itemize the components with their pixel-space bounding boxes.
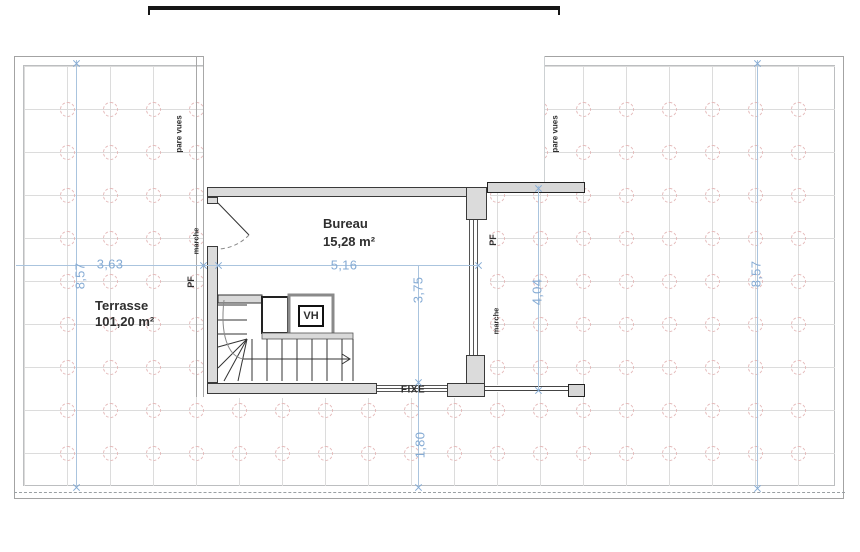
dim-tick bbox=[534, 184, 543, 193]
tile-joint-circle bbox=[318, 446, 333, 461]
tile-joint-circle bbox=[103, 403, 118, 418]
tile-joint-circle bbox=[748, 145, 763, 160]
left-wall-outer-face-line bbox=[196, 56, 197, 397]
tile-joint-circle bbox=[146, 102, 161, 117]
tile-joint-circle bbox=[232, 446, 247, 461]
tile-joint-circle bbox=[705, 317, 720, 332]
tile-joint-circle bbox=[103, 446, 118, 461]
tile-joint-circle bbox=[619, 403, 634, 418]
vh-skylight-label: VH bbox=[299, 306, 323, 326]
tile-joint-circle bbox=[576, 403, 591, 418]
tile-joint-circle bbox=[662, 188, 677, 203]
bureau-wall-corner-top-right bbox=[466, 187, 487, 220]
dim-tick bbox=[199, 261, 208, 270]
dim-tick bbox=[72, 483, 81, 492]
tile-joint-circle bbox=[576, 231, 591, 246]
tile-joint-circle bbox=[705, 360, 720, 375]
bureau-wall-bottom-right-piece bbox=[447, 383, 485, 397]
tile-joint-circle bbox=[490, 403, 505, 418]
tile-joint-circle bbox=[146, 188, 161, 203]
tile-joint-circle bbox=[705, 446, 720, 461]
tile-joint-circle bbox=[103, 145, 118, 160]
tile-joint-circle bbox=[146, 231, 161, 246]
tile-joint-circle bbox=[146, 360, 161, 375]
tile-joint-circle bbox=[490, 446, 505, 461]
tile-joint-circle bbox=[619, 102, 634, 117]
notch-right-boundary-line bbox=[544, 56, 545, 183]
tile-joint-circle bbox=[619, 446, 634, 461]
tile-joint-circle bbox=[60, 360, 75, 375]
tile-joint-circle bbox=[404, 403, 419, 418]
window-pf-right-line bbox=[469, 220, 470, 355]
tile-joint-circle bbox=[447, 403, 462, 418]
tile-joint-circle bbox=[146, 274, 161, 289]
tile-joint-circle bbox=[361, 403, 376, 418]
tile-joint-circle bbox=[447, 446, 462, 461]
tile-joint-circle bbox=[533, 317, 548, 332]
tile-joint-circle bbox=[275, 446, 290, 461]
tile-joint-circle bbox=[662, 274, 677, 289]
tile-joint-circle bbox=[576, 145, 591, 160]
dim-label-terrace-height-right: 8,57 bbox=[749, 261, 764, 288]
tile-joint-circle bbox=[662, 446, 677, 461]
tile-joint-circle bbox=[490, 274, 505, 289]
tile-joint-circle bbox=[619, 231, 634, 246]
railing-bottom-right-line bbox=[485, 386, 568, 387]
tile-joint-circle bbox=[619, 360, 634, 375]
tile-joint-circle bbox=[533, 446, 548, 461]
tile-joint-circle bbox=[576, 317, 591, 332]
tile-joint-circle bbox=[60, 231, 75, 246]
tile-joint-circle bbox=[748, 403, 763, 418]
tile-joint-circle bbox=[791, 274, 806, 289]
upper-floor-wall-line bbox=[148, 6, 560, 10]
tile-joint-circle bbox=[146, 446, 161, 461]
tile-joint-circle bbox=[189, 403, 204, 418]
tile-joint-circle bbox=[146, 145, 161, 160]
tile-joint-circle bbox=[748, 360, 763, 375]
dim-tick bbox=[414, 483, 423, 492]
tile-joint-circle bbox=[791, 317, 806, 332]
tile-joint-circle bbox=[60, 188, 75, 203]
bureau-area: 15,28 m² bbox=[323, 233, 375, 251]
tile-joint-circle bbox=[662, 360, 677, 375]
tile-joint-circle bbox=[791, 360, 806, 375]
tile-joint-circle bbox=[533, 403, 548, 418]
tile-joint-circle bbox=[533, 231, 548, 246]
tile-joint-circle bbox=[662, 317, 677, 332]
window-pf-right-line bbox=[477, 220, 478, 355]
door-swing-icon bbox=[204, 186, 264, 256]
tile-joint-circle bbox=[748, 231, 763, 246]
tile-joint-circle bbox=[705, 102, 720, 117]
window-pf-right-line bbox=[473, 220, 474, 355]
terrasse-name: Terrasse bbox=[95, 298, 154, 314]
upper-notch-area bbox=[204, 53, 544, 187]
floor-plan: VH 8,57 3,63 5,16 3,75 4,04 1,80 8,57 Te… bbox=[0, 0, 860, 552]
dim-tick bbox=[474, 261, 483, 270]
tile-joint-circle bbox=[791, 188, 806, 203]
tile-joint-circle bbox=[60, 102, 75, 117]
dim-label-bottom-offset: 1,80 bbox=[413, 432, 428, 459]
tile-joint-circle bbox=[232, 403, 247, 418]
tile-joint-circle bbox=[576, 446, 591, 461]
tile-joint-circle bbox=[791, 102, 806, 117]
tile-joint-circle bbox=[60, 145, 75, 160]
tile-joint-circle bbox=[619, 274, 634, 289]
tile-joint-circle bbox=[490, 360, 505, 375]
tile-joint-circle bbox=[361, 446, 376, 461]
tile-joint-circle bbox=[275, 403, 290, 418]
tile-joint-circle bbox=[576, 274, 591, 289]
tile-joint-circle bbox=[318, 403, 333, 418]
tile-joint-circle bbox=[103, 360, 118, 375]
tile-joint-circle bbox=[705, 188, 720, 203]
dim-tick bbox=[534, 386, 543, 395]
tile-joint-circle bbox=[791, 231, 806, 246]
tile-joint-circle bbox=[189, 446, 204, 461]
dim-tick bbox=[214, 261, 223, 270]
tile-joint-circle bbox=[662, 102, 677, 117]
pare-vues-post-bottom-right bbox=[568, 384, 585, 397]
tile-joint-circle bbox=[60, 403, 75, 418]
tile-joint-circle bbox=[60, 317, 75, 332]
tile-joint-circle bbox=[619, 317, 634, 332]
tile-joint-circle bbox=[60, 446, 75, 461]
marche-label-left: marche bbox=[192, 228, 201, 255]
tile-joint-circle bbox=[619, 145, 634, 160]
tile-joint-circle bbox=[791, 446, 806, 461]
tile-joint-circle bbox=[791, 145, 806, 160]
tile-joint-circle bbox=[576, 102, 591, 117]
dim-label-terrace-height-left: 8,57 bbox=[73, 263, 88, 290]
pare-vues-label-left: pare vues bbox=[175, 115, 184, 152]
terrace-bottom-dashed-edge bbox=[14, 492, 845, 493]
tile-joint-circle bbox=[748, 102, 763, 117]
pf-label-left: PF bbox=[186, 276, 196, 288]
dim-label-terrace-width-left: 3,63 bbox=[97, 257, 124, 272]
tile-joint-circle bbox=[705, 145, 720, 160]
tile-joint-circle bbox=[748, 446, 763, 461]
terrasse-room-label: Terrasse 101,20 m² bbox=[95, 298, 154, 330]
tile-joint-circle bbox=[748, 317, 763, 332]
tile-joint-circle bbox=[662, 231, 677, 246]
tile-joint-circle bbox=[705, 231, 720, 246]
upper-floor-wall-tick-left bbox=[148, 6, 150, 15]
tile-joint-circle bbox=[705, 403, 720, 418]
railing-bottom-right-line bbox=[485, 390, 568, 391]
tile-joint-circle bbox=[662, 145, 677, 160]
terrasse-area: 101,20 m² bbox=[95, 314, 154, 330]
marche-label-right: marche bbox=[492, 308, 501, 335]
tile-joint-circle bbox=[619, 188, 634, 203]
tile-joint-circle bbox=[103, 231, 118, 246]
pare-vues-label-right: pare vues bbox=[551, 115, 560, 152]
tile-joint-circle bbox=[146, 403, 161, 418]
tile-joint-circle bbox=[662, 403, 677, 418]
fixe-label: FIXE bbox=[401, 385, 425, 396]
dim-tick bbox=[72, 59, 81, 68]
bureau-name: Bureau bbox=[323, 215, 375, 233]
tile-joint-circle bbox=[791, 403, 806, 418]
dim-label-bureau-depth: 3,75 bbox=[411, 277, 426, 304]
staircase bbox=[204, 290, 364, 386]
dim-label-bureau-width: 5,16 bbox=[331, 258, 358, 273]
vh-label-text: VH bbox=[303, 310, 318, 322]
tile-joint-circle bbox=[705, 274, 720, 289]
dim-tick bbox=[753, 59, 762, 68]
dim-label-right-section-height: 4,04 bbox=[530, 279, 545, 306]
tile-joint-circle bbox=[748, 188, 763, 203]
bureau-room-label: Bureau 15,28 m² bbox=[323, 215, 375, 251]
tile-joint-circle bbox=[576, 360, 591, 375]
tile-joint-circle bbox=[103, 274, 118, 289]
pf-label-right: PF bbox=[488, 234, 498, 246]
tile-joint-circle bbox=[103, 102, 118, 117]
tile-joint-circle bbox=[533, 360, 548, 375]
upper-floor-wall-tick-right bbox=[558, 6, 560, 15]
tile-joint-circle bbox=[103, 188, 118, 203]
dim-tick bbox=[753, 484, 762, 493]
